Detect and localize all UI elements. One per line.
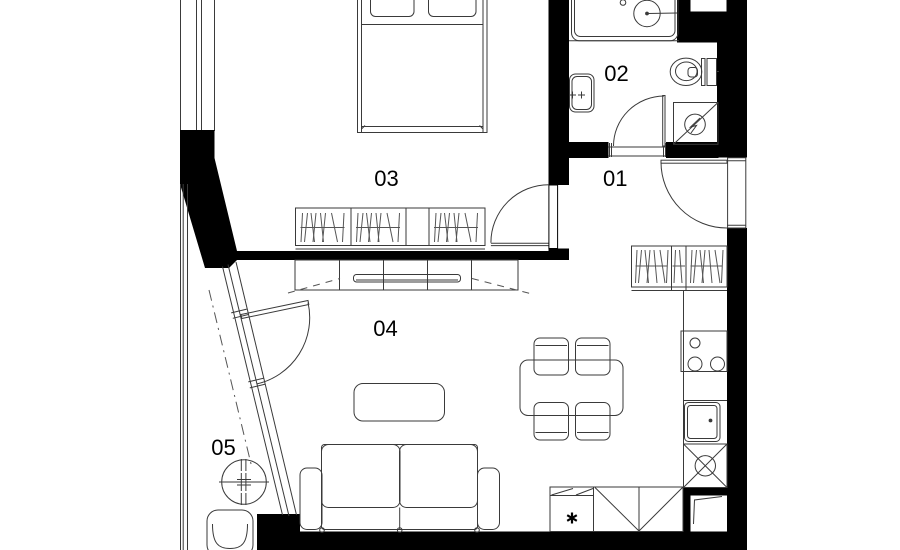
svg-text:03: 03	[374, 166, 398, 191]
svg-text:05: 05	[211, 435, 235, 460]
svg-text:01: 01	[603, 166, 627, 191]
svg-text:04: 04	[373, 316, 397, 341]
svg-text:02: 02	[604, 61, 628, 86]
